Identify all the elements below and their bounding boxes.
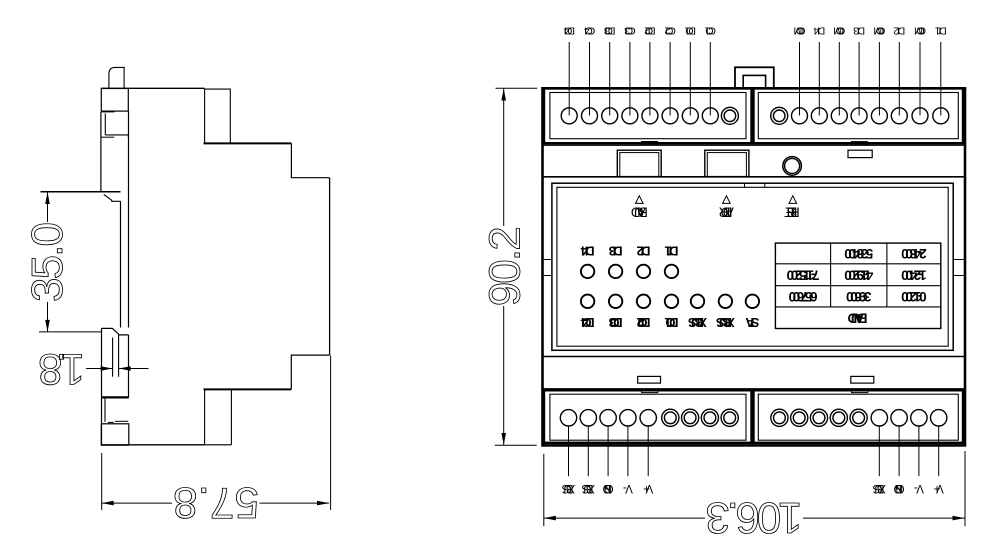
svg-text:RESET: RESET (784, 205, 800, 220)
svg-text:5-38400: 5-38400 (844, 246, 873, 261)
svg-text:XBUS: XBUS (716, 315, 735, 330)
svg-text:DI2: DI2 (637, 244, 651, 259)
svg-text:2-4800: 2-4800 (901, 246, 927, 261)
svg-text:CO1: CO1 (704, 25, 716, 37)
svg-text:6-57600: 6-57600 (789, 289, 818, 304)
svg-text:1-2400: 1-2400 (901, 267, 927, 282)
svg-text:CO2: CO2 (664, 25, 676, 37)
svg-text:DO2: DO2 (644, 25, 656, 37)
svg-text:COM: COM (833, 25, 845, 37)
svg-text:V-: V- (623, 482, 633, 494)
svg-text:XBUS: XBUS (872, 482, 886, 494)
svg-text:DO3: DO3 (609, 315, 623, 330)
svg-text:7-115200: 7-115200 (787, 267, 820, 282)
svg-text:DI4: DI4 (580, 244, 595, 259)
svg-text:COM: COM (794, 25, 806, 37)
svg-text:GND: GND (603, 482, 614, 494)
svg-text:BAUD: BAUD (847, 310, 867, 325)
svg-text:DI1: DI1 (665, 244, 679, 259)
svg-text:V+: V+ (933, 482, 943, 494)
svg-text:0-1200: 0-1200 (901, 289, 927, 304)
svg-text:DI1: DI1 (935, 25, 947, 37)
svg-text:XBUS: XBUS (561, 482, 575, 494)
svg-text:106.3: 106.3 (705, 493, 802, 542)
svg-text:DI2: DI2 (893, 25, 905, 37)
svg-text:35.0: 35.0 (23, 222, 72, 302)
svg-text:XBUS: XBUS (688, 315, 707, 330)
svg-text:57.8: 57.8 (173, 478, 259, 527)
svg-text:DI3: DI3 (609, 244, 623, 259)
svg-text:COM: COM (914, 25, 926, 37)
svg-text:DO3: DO3 (604, 25, 616, 37)
svg-text:DO1: DO1 (684, 25, 696, 37)
svg-text:DO4: DO4 (563, 25, 575, 37)
svg-text:3-9600: 3-9600 (846, 289, 872, 304)
svg-text:90.2: 90.2 (481, 226, 530, 306)
svg-text:4-19200: 4-19200 (844, 267, 873, 282)
svg-text:V+: V+ (643, 482, 653, 494)
svg-text:1.8: 1.8 (38, 345, 85, 394)
svg-text:DI4: DI4 (813, 25, 825, 37)
svg-text:DO4: DO4 (580, 315, 595, 330)
svg-text:DO1: DO1 (665, 315, 679, 330)
svg-text:XBUS: XBUS (581, 482, 595, 494)
svg-text:GND: GND (894, 482, 905, 494)
svg-text:BAUD: BAUD (631, 205, 648, 220)
svg-text:CO4: CO4 (584, 25, 596, 37)
svg-text:V-: V- (914, 482, 924, 494)
svg-text:DI3: DI3 (853, 25, 865, 37)
svg-text:STA: STA (745, 315, 760, 330)
svg-text:COM: COM (873, 25, 885, 37)
svg-text:ADDR: ADDR (718, 205, 733, 220)
svg-text:DO2: DO2 (637, 315, 651, 330)
svg-text:CO3: CO3 (624, 25, 636, 37)
